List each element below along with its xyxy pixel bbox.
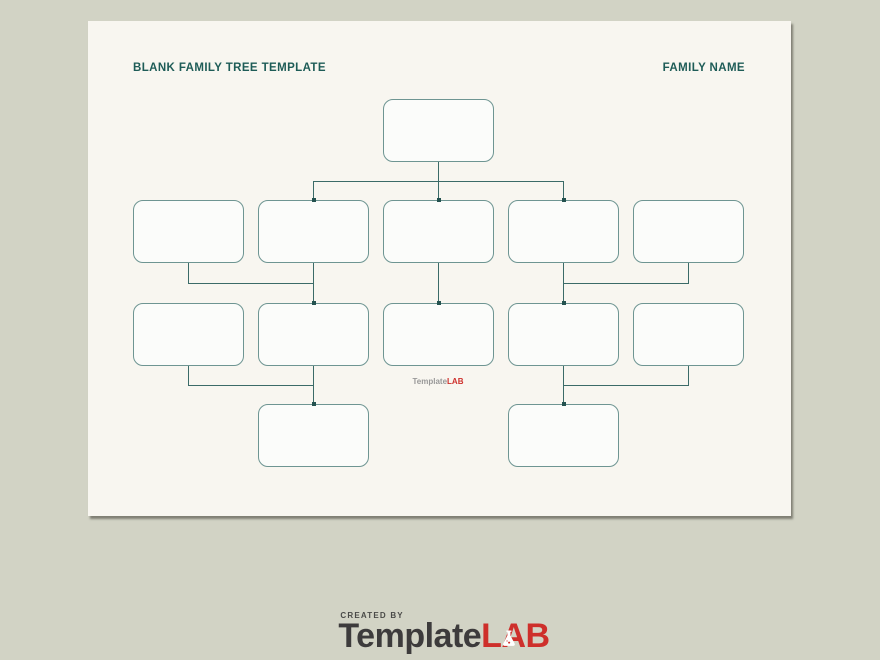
connector-line: [688, 366, 689, 385]
connector-node: [437, 198, 441, 202]
brand-gray-text: Template: [338, 617, 481, 655]
connector-line: [188, 263, 189, 283]
member-box-g3-2[interactable]: [258, 303, 369, 366]
connector-line: [688, 263, 689, 283]
connector-node: [437, 301, 441, 305]
member-box-g2-2[interactable]: [258, 200, 369, 263]
connector-line: [563, 385, 689, 386]
brand-wordmark: TemplateLAB: [338, 621, 549, 651]
member-box-g1-1[interactable]: [383, 99, 494, 162]
connector-line: [313, 366, 314, 404]
member-box-g4-1[interactable]: [258, 404, 369, 467]
connector-node: [562, 198, 566, 202]
watermark-brand-red: LAB: [447, 377, 463, 386]
member-box-g3-4[interactable]: [508, 303, 619, 366]
member-box-g2-1[interactable]: [133, 200, 244, 263]
footer-logo: CREATED BY TemplateLAB: [338, 611, 549, 651]
member-box-g2-5[interactable]: [633, 200, 744, 263]
template-page: BLANK FAMILY TREE TEMPLATE FAMILY NAME T…: [88, 21, 791, 516]
connector-node: [562, 301, 566, 305]
connector-line: [188, 366, 189, 385]
connector-line: [438, 162, 439, 181]
member-box-g4-2[interactable]: [508, 404, 619, 467]
connector-node: [312, 198, 316, 202]
connector-node: [312, 301, 316, 305]
connector-line: [188, 283, 314, 284]
flask-icon: [501, 630, 516, 647]
member-box-g3-1[interactable]: [133, 303, 244, 366]
watermark-brand-gray: Template: [413, 377, 448, 386]
connector-line: [438, 263, 439, 303]
watermark: TemplateLAB: [413, 377, 464, 386]
member-box-g3-5[interactable]: [633, 303, 744, 366]
connector-line: [188, 385, 314, 386]
connector-line: [313, 263, 314, 303]
connector-line: [563, 366, 564, 404]
member-box-g2-4[interactable]: [508, 200, 619, 263]
member-box-g3-3[interactable]: [383, 303, 494, 366]
family-tree-diagram: [88, 21, 791, 516]
connector-node: [312, 402, 316, 406]
connector-line: [563, 263, 564, 303]
member-box-g2-3[interactable]: [383, 200, 494, 263]
connector-node: [562, 402, 566, 406]
connector-line: [563, 283, 689, 284]
